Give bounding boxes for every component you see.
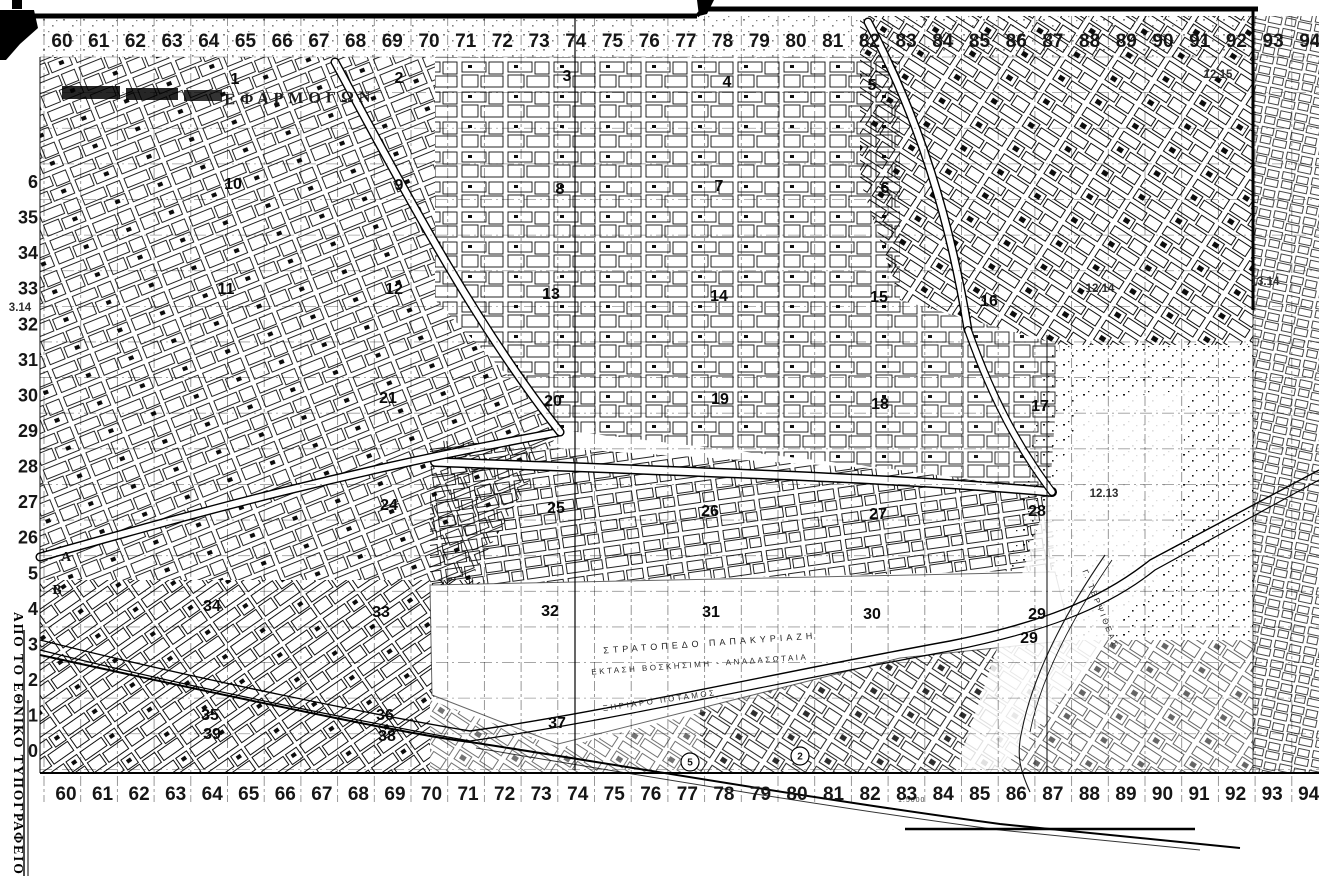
grid-col-bottom-86: 86 [1006, 784, 1027, 805]
grid-row-left-15: 1 [28, 706, 38, 726]
sector-number-33: 33 [372, 604, 390, 621]
grid-row-left-1: 35 [18, 208, 38, 228]
sector-number-18: 18 [871, 396, 889, 413]
sector-number-1: 1 [231, 71, 240, 88]
circled-symbol-label-5: 5 [687, 758, 693, 769]
sector-number-39: 39 [203, 726, 221, 743]
grid-row-left-13: 3 [28, 634, 38, 654]
grid-col-bottom-88: 88 [1079, 784, 1100, 805]
grid-col-top-93: 93 [1263, 31, 1284, 52]
ref-label-13.14: 13.14 [1251, 276, 1280, 288]
sector-number-21: 21 [379, 390, 397, 407]
sector-number-38: 38 [378, 728, 396, 745]
sector-number-11: 11 [218, 281, 235, 298]
grid-col-top-68: 68 [345, 31, 366, 52]
grid-col-top-77: 77 [675, 31, 696, 52]
sector-number-17: 17 [1031, 398, 1049, 415]
ref-label-12.13: 12.13 [1090, 488, 1119, 500]
ref-label-3.14: 3.14 [9, 302, 32, 314]
grid-row-left-11: 5 [28, 563, 38, 583]
grid-col-bottom-81: 81 [823, 784, 845, 805]
grid-row-left-7: 29 [18, 421, 38, 441]
grid-col-bottom-75: 75 [604, 784, 626, 805]
grid-col-bottom-72: 72 [494, 784, 515, 805]
grid-col-top-88: 88 [1079, 31, 1100, 52]
grid-col-bottom-61: 61 [92, 784, 114, 805]
grid-col-top-69: 69 [382, 31, 403, 52]
sector-number-32: 32 [541, 603, 559, 620]
sector-number-29: 29 [1028, 606, 1046, 623]
ref-label-12.14: 12.14 [1086, 283, 1115, 295]
grid-col-bottom-87: 87 [1042, 784, 1063, 805]
sector-number-16: 16 [980, 293, 998, 310]
sector-number-37: 37 [548, 715, 566, 732]
sector-number-3: 3 [563, 68, 572, 85]
grid-col-bottom-63: 63 [165, 784, 186, 805]
grid-col-bottom-79: 79 [750, 784, 771, 805]
sector-number-8: 8 [556, 181, 565, 198]
sector-number-2: 2 [395, 70, 404, 87]
grid-col-bottom-66: 66 [275, 784, 296, 805]
grid-row-left-12: 4 [28, 599, 38, 619]
sector-number-35: 35 [201, 707, 219, 724]
sector-number-9: 9 [395, 177, 404, 194]
grid-col-top-92: 92 [1226, 31, 1247, 52]
sector-number-6: 6 [881, 180, 890, 197]
grid-col-bottom-84: 84 [933, 784, 955, 805]
grid-col-bottom-92: 92 [1225, 784, 1246, 805]
sector-number-31: 31 [702, 604, 720, 621]
grid-row-left-14: 2 [28, 670, 38, 690]
grid-col-top-65: 65 [235, 31, 257, 52]
grid-col-top-73: 73 [529, 31, 550, 52]
sector-number-19: 19 [711, 391, 729, 408]
grid-row-left-5: 31 [18, 350, 38, 370]
grid-col-bottom-89: 89 [1115, 784, 1136, 805]
grid-col-top-63: 63 [162, 31, 183, 52]
label-letter-b: Β [52, 583, 61, 598]
grid-row-left-3: 33 [18, 279, 38, 299]
grid-col-top-74: 74 [565, 31, 587, 52]
grid-col-bottom-94: 94 [1298, 784, 1319, 805]
grid-row-left-2: 34 [18, 243, 38, 263]
sector-number-10: 10 [224, 176, 242, 193]
grid-row-left-4: 32 [18, 314, 38, 334]
grid-col-top-66: 66 [272, 31, 293, 52]
grid-col-bottom-83: 83 [896, 784, 917, 805]
grid-col-bottom-77: 77 [677, 784, 698, 805]
sector-number-4: 4 [723, 74, 732, 91]
grid-col-top-87: 87 [1042, 31, 1063, 52]
sector-number-5: 5 [868, 77, 877, 94]
grid-col-bottom-68: 68 [348, 784, 369, 805]
grid-col-top-71: 71 [455, 31, 477, 52]
grid-col-top-60: 60 [51, 31, 72, 52]
grid-col-top-91: 91 [1189, 31, 1211, 52]
grid-row-left-10: 26 [18, 528, 38, 548]
grid-col-bottom-65: 65 [238, 784, 260, 805]
grid-col-top-76: 76 [639, 31, 660, 52]
grid-col-top-83: 83 [896, 31, 917, 52]
sector-number-7: 7 [715, 178, 724, 195]
label-letter-a: Α [61, 550, 72, 565]
grid-col-bottom-62: 62 [129, 784, 150, 805]
grid-col-top-80: 80 [785, 31, 806, 52]
sector-number-34: 34 [203, 598, 221, 615]
grid-col-bottom-80: 80 [786, 784, 807, 805]
sector-number-27: 27 [869, 506, 887, 523]
grid-col-bottom-69: 69 [384, 784, 405, 805]
sector-number-12: 12 [385, 281, 403, 298]
grid-col-bottom-73: 73 [531, 784, 552, 805]
sector-number-28: 28 [1028, 503, 1046, 520]
grid-col-bottom-70: 70 [421, 784, 442, 805]
sector-number-25: 25 [547, 500, 565, 517]
grid-col-bottom-85: 85 [969, 784, 991, 805]
sector-number-26: 26 [701, 503, 719, 520]
grid-col-top-70: 70 [418, 31, 439, 52]
grid-col-top-89: 89 [1116, 31, 1137, 52]
grid-col-top-78: 78 [712, 31, 733, 52]
grid-col-bottom-67: 67 [311, 784, 332, 805]
grid-col-top-85: 85 [969, 31, 991, 52]
sector-number-15: 15 [870, 289, 888, 306]
grid-col-top-81: 81 [822, 31, 844, 52]
sector-number-30: 30 [863, 606, 881, 623]
sector-number-29: 29 [1020, 630, 1038, 647]
grid-col-bottom-93: 93 [1262, 784, 1283, 805]
grid-col-top-86: 86 [1006, 31, 1027, 52]
grid-col-top-72: 72 [492, 31, 513, 52]
sector-number-36: 36 [376, 707, 394, 724]
circled-symbol-label-2: 2 [797, 752, 803, 763]
grid-col-bottom-60: 60 [55, 784, 76, 805]
grid-col-top-64: 64 [198, 31, 220, 52]
ref-label-12.15: 12.15 [1204, 69, 1233, 81]
sector-number-24: 24 [380, 497, 398, 514]
grid-col-bottom-82: 82 [860, 784, 881, 805]
grid-col-top-75: 75 [602, 31, 624, 52]
grid-col-bottom-91: 91 [1188, 784, 1210, 805]
map-canvas: ΕΦΑΡΜΟΓΩΝ ΣΤΡΑΤΟΠΕΔΟ ΠΑΠΑΚΥΡΙΑΖΗ ΕΚΤΑΣΗ … [0, 0, 1319, 876]
grid-col-top-90: 90 [1152, 31, 1173, 52]
label-efarmogon: ΕΦΑΡΜΟΓΩΝ [224, 89, 375, 109]
imprint-national-printing-office: ΑΠΟ ΤΟ ΕΘΝΙΚΟ ΤΥΠΟΓΡΑΦΕΙΟ [11, 612, 26, 876]
grid-row-left-6: 30 [18, 385, 38, 405]
grid-col-top-94: 94 [1299, 31, 1319, 52]
sector-number-14: 14 [710, 288, 728, 305]
grid-col-bottom-71: 71 [457, 784, 479, 805]
grid-row-left-0: 6 [28, 172, 38, 192]
grid-col-bottom-90: 90 [1152, 784, 1173, 805]
scanned-city-map-page: ΕΦΑΡΜΟΓΩΝ ΣΤΡΑΤΟΠΕΔΟ ΠΑΠΑΚΥΡΙΑΖΗ ΕΚΤΑΣΗ … [0, 0, 1319, 876]
sector-number-20: 20 [544, 393, 562, 410]
grid-col-bottom-76: 76 [640, 784, 661, 805]
grid-col-top-79: 79 [749, 31, 770, 52]
grid-col-top-62: 62 [125, 31, 146, 52]
grid-col-top-84: 84 [932, 31, 954, 52]
sector-number-13: 13 [542, 286, 560, 303]
grid-col-bottom-64: 64 [202, 784, 224, 805]
grid-col-top-61: 61 [88, 31, 110, 52]
grid-col-bottom-74: 74 [567, 784, 589, 805]
grid-col-top-82: 82 [859, 31, 880, 52]
grid-col-bottom-78: 78 [713, 784, 734, 805]
grid-row-left-8: 28 [18, 457, 38, 477]
grid-row-left-9: 27 [18, 492, 38, 512]
grid-row-left-16: 0 [28, 741, 38, 761]
grid-col-top-67: 67 [308, 31, 329, 52]
